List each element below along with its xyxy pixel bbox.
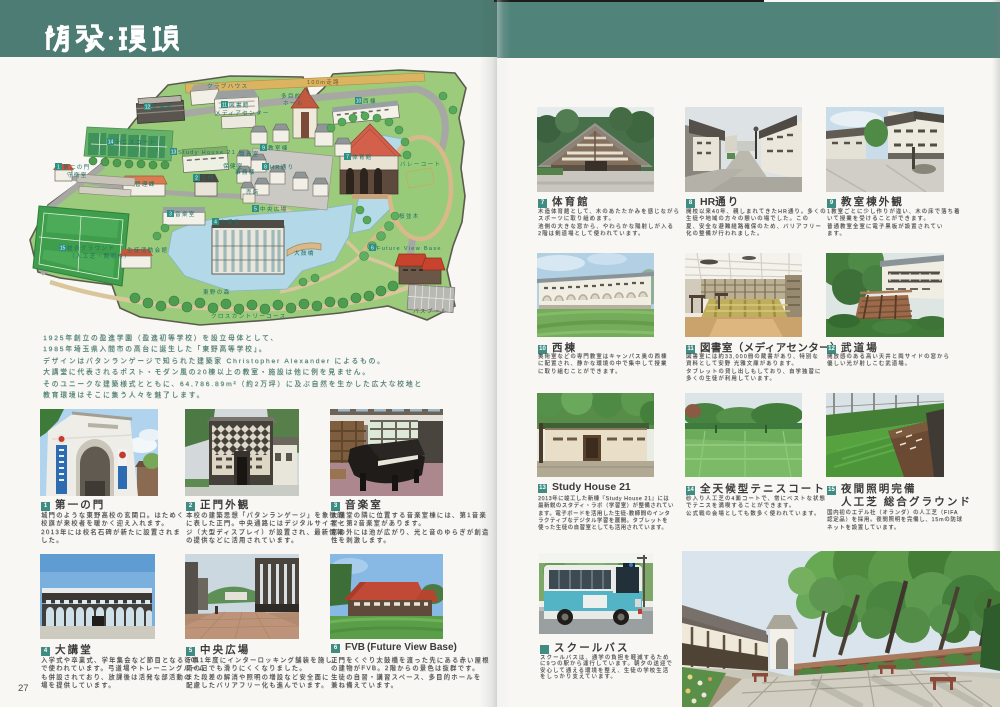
svg-text:生徒活動会館: 生徒活動会館 <box>127 246 168 254</box>
svg-text:保健室: 保健室 <box>223 162 244 170</box>
svg-text:4: 4 <box>214 220 217 226</box>
svg-text:2: 2 <box>195 176 198 182</box>
svg-text:武道場: 武道場 <box>152 103 173 111</box>
svg-text:1: 1 <box>57 165 60 171</box>
svg-text:クラブハウス: クラブハウス <box>207 82 248 90</box>
svg-text:11: 11 <box>222 103 227 109</box>
svg-text:12: 12 <box>145 105 151 111</box>
svg-text:音楽室: 音楽室 <box>175 210 196 218</box>
svg-text:第二の門: 第二の門 <box>63 163 91 171</box>
svg-text:13: 13 <box>171 150 177 156</box>
svg-text:東野の森: 東野の森 <box>203 288 231 296</box>
svg-text:売店: 売店 <box>246 188 260 196</box>
svg-text:メディアセンター: メディアセンター <box>215 109 270 117</box>
svg-text:Future View Base: Future View Base <box>377 246 442 252</box>
svg-text:10: 10 <box>356 99 362 105</box>
svg-text:（人工芝・照明付）: （人工芝・照明付） <box>69 252 131 260</box>
svg-text:HR通り: HR通り <box>270 163 294 171</box>
svg-text:管理課: 管理課 <box>135 180 156 188</box>
svg-text:教室棟: 教室棟 <box>268 144 289 152</box>
svg-text:3: 3 <box>169 212 172 218</box>
svg-text:100m走路: 100m走路 <box>307 78 340 86</box>
svg-text:Study House 21: Study House 21 <box>178 150 236 156</box>
svg-text:西棟: 西棟 <box>363 97 377 105</box>
svg-text:8: 8 <box>264 165 267 171</box>
svg-text:バレーコート: バレーコート <box>400 161 441 168</box>
svg-text:15: 15 <box>60 246 66 252</box>
svg-text:大講堂: 大講堂 <box>220 218 241 226</box>
svg-text:職員室: 職員室 <box>239 150 260 158</box>
svg-text:9: 9 <box>262 146 265 152</box>
svg-text:総合グラウンド: 総合グラウンド <box>67 244 115 252</box>
svg-text:ホール: ホール <box>283 100 304 107</box>
svg-text:7: 7 <box>346 155 349 161</box>
svg-text:桜並木: 桜並木 <box>399 212 420 220</box>
svg-text:クロスカントリーコース: クロスカントリーコース <box>211 313 287 320</box>
svg-text:守衛室: 守衛室 <box>67 171 88 179</box>
svg-text:大鼓橋: 大鼓橋 <box>294 249 315 257</box>
svg-text:テニスコート: テニスコート <box>115 139 156 146</box>
svg-text:14: 14 <box>108 140 114 146</box>
svg-text:バスプール: バスプール <box>413 308 447 315</box>
svg-text:図書館: 図書館 <box>229 101 250 109</box>
svg-text:中央広場: 中央広場 <box>260 205 288 213</box>
svg-text:6: 6 <box>371 246 374 252</box>
svg-text:多目的: 多目的 <box>281 92 302 100</box>
svg-text:事務棟: 事務棟 <box>235 168 256 176</box>
svg-text:体育館: 体育館 <box>352 153 373 161</box>
svg-text:5: 5 <box>254 207 257 213</box>
svg-text:正門: 正門 <box>201 175 215 182</box>
